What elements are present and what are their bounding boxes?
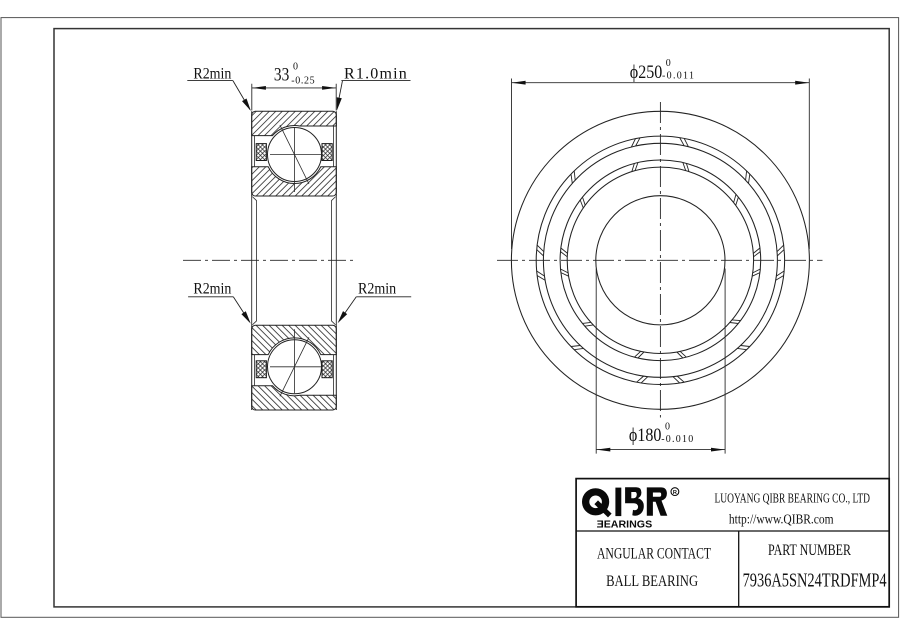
svg-text:http://www.QIBR.com: http://www.QIBR.com [729, 512, 834, 527]
svg-text:33: 33 [274, 64, 289, 85]
svg-text:0: 0 [293, 61, 298, 72]
svg-text:-0.010: -0.010 [661, 434, 693, 445]
svg-text:PART NUMBER: PART NUMBER [768, 542, 851, 559]
svg-text:0: 0 [665, 421, 670, 432]
svg-text:R2min: R2min [358, 281, 396, 298]
svg-text:ƎEARINGS: ƎEARINGS [597, 519, 653, 530]
svg-text:ANGULAR CONTACT: ANGULAR CONTACT [597, 546, 711, 563]
svg-text:LUOYANG QIBR BEARING CO., LTD: LUOYANG QIBR BEARING CO., LTD [715, 491, 871, 506]
svg-text:R2min: R2min [193, 281, 231, 298]
svg-text:R: R [673, 490, 677, 496]
svg-text:ϕ250: ϕ250 [630, 62, 663, 83]
svg-text:ϕ180: ϕ180 [629, 425, 662, 446]
svg-text:BALL BEARING: BALL BEARING [606, 573, 698, 590]
svg-text:R1.0min: R1.0min [344, 66, 408, 83]
svg-text:7936A5SN24TRDFMP4: 7936A5SN24TRDFMP4 [743, 570, 887, 592]
svg-text:-0.011: -0.011 [662, 71, 694, 82]
svg-text:-0.25: -0.25 [291, 75, 314, 86]
svg-text:0: 0 [666, 58, 671, 69]
svg-text:R2min: R2min [193, 66, 231, 83]
